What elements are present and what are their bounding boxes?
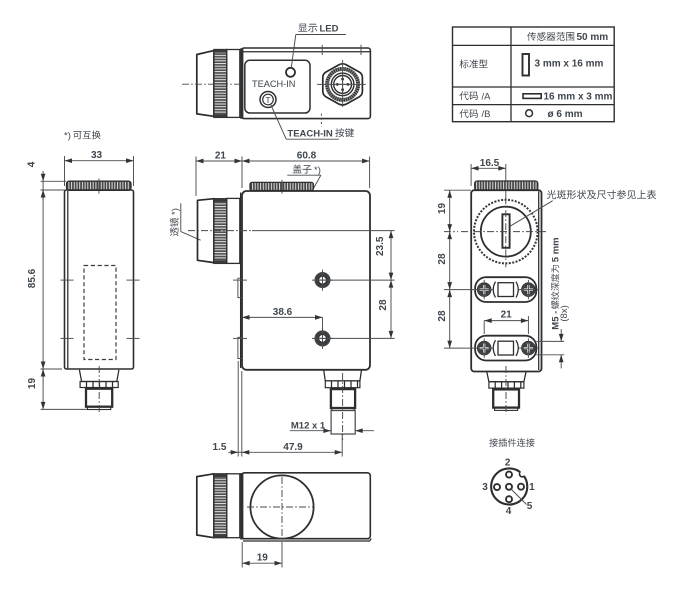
svg-text:28: 28 [378, 299, 389, 311]
svg-text:19: 19 [437, 203, 448, 215]
svg-text:2: 2 [505, 457, 511, 468]
svg-text:38.6: 38.6 [273, 307, 293, 318]
svg-text:50 mm: 50 mm [577, 32, 609, 43]
svg-text:1.5: 1.5 [213, 442, 227, 453]
svg-text:28: 28 [437, 253, 448, 265]
svg-text:TEACH-IN: TEACH-IN [287, 128, 333, 139]
svg-text:47.9: 47.9 [283, 442, 303, 453]
svg-text:19: 19 [27, 378, 38, 390]
svg-text:*): *) [64, 131, 71, 142]
svg-text:60.8: 60.8 [297, 151, 317, 162]
svg-text:5: 5 [527, 501, 533, 512]
svg-text:21: 21 [215, 151, 227, 162]
svg-text:/A: /A [482, 91, 492, 102]
svg-text:21: 21 [501, 310, 513, 321]
svg-text:16.5: 16.5 [480, 158, 500, 169]
svg-text:*): *) [170, 208, 181, 215]
svg-text:23.5: 23.5 [375, 236, 386, 256]
svg-text:(8x): (8x) [559, 305, 570, 321]
svg-text:28: 28 [437, 310, 448, 322]
svg-text:T: T [265, 95, 270, 105]
svg-text:4: 4 [506, 506, 512, 517]
svg-text:16 mm x 3 mm: 16 mm x 3 mm [544, 92, 613, 103]
svg-text:3 mm x 16 mm: 3 mm x 16 mm [535, 59, 604, 70]
svg-text:LED: LED [320, 24, 339, 35]
svg-text:5 mm: 5 mm [551, 237, 562, 262]
svg-text:ø 6 mm: ø 6 mm [548, 109, 583, 120]
svg-text:19: 19 [257, 553, 269, 564]
svg-text:TEACH-IN: TEACH-IN [252, 79, 295, 89]
svg-text:85.6: 85.6 [27, 268, 38, 288]
svg-text:1: 1 [529, 482, 535, 493]
svg-text:/B: /B [482, 109, 491, 120]
svg-text:M12 x 1: M12 x 1 [291, 420, 326, 431]
svg-text:3: 3 [482, 482, 488, 493]
svg-text:*): *) [314, 165, 321, 176]
svg-text:4: 4 [27, 161, 38, 167]
svg-text:33: 33 [91, 150, 103, 161]
